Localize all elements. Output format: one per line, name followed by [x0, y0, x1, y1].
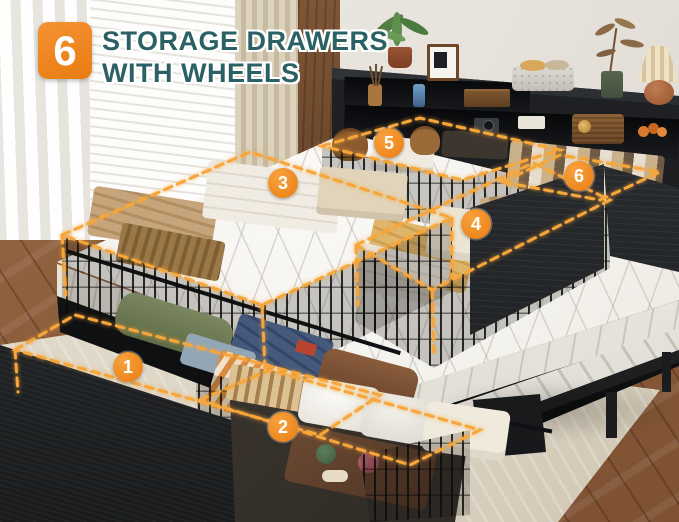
drawer-4-corner-dash	[356, 245, 358, 305]
drawer-3-corner-dash	[62, 235, 66, 295]
badge-drawer-3: 3	[268, 168, 298, 198]
badge-drawer-1: 1	[113, 352, 143, 382]
callout: 6 STORAGE DRAWERS WITH WHEELS	[0, 0, 420, 100]
badge-drawer-4: 4	[461, 209, 491, 239]
product-photo-bed-with-storage-drawers: 1 2 3 4 5 6 6 STORAGE DRAWERS WITH WHEEL…	[0, 0, 679, 522]
drawer-5-dashed-outline	[322, 118, 560, 180]
callout-title-line2: WITH WHEELS	[102, 58, 299, 89]
drawer-4-corner-dash	[432, 290, 434, 352]
drawer-3-corner-dash	[262, 305, 265, 368]
callout-count-badge: 6	[38, 22, 92, 79]
badge-drawer-5: 5	[374, 128, 404, 158]
drawer-1-corner-dash	[15, 350, 18, 392]
badge-drawer-2: 2	[268, 412, 298, 442]
callout-title-line1: STORAGE DRAWERS	[102, 26, 388, 57]
drawer-1-dashed-outline	[15, 315, 380, 435]
badge-drawer-6: 6	[564, 161, 594, 191]
